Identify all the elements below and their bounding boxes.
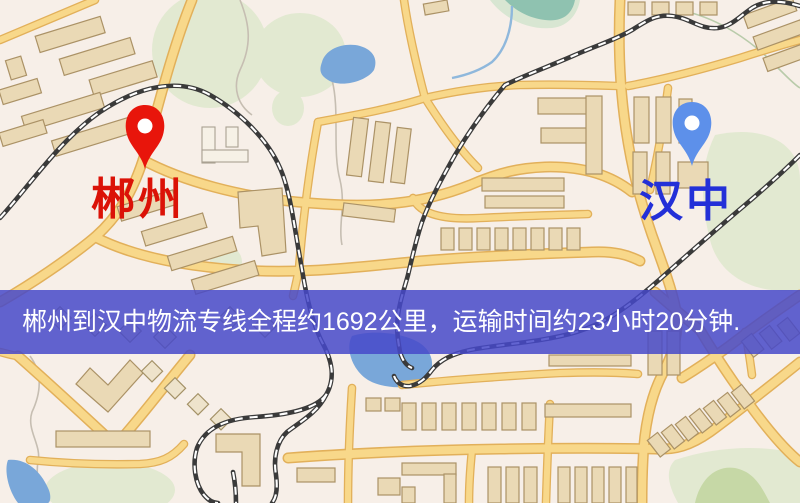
white-buildings-layer (202, 127, 248, 163)
route-info-text: 郴州到汉中物流专线全程约1692公里，运输时间约23小时20分钟. (0, 290, 800, 354)
origin-pin-icon (126, 105, 165, 169)
map-canvas: 郴州 汉中 (0, 0, 800, 503)
route-map: 郴州 汉中 郴州到汉中物流专线全程约1692公里，运输时间约23小时20分钟. (0, 0, 800, 503)
route-info-banner: 郴州到汉中物流专线全程约1692公里，运输时间约23小时20分钟. (0, 290, 800, 354)
destination-city-label: 汉中 (639, 177, 733, 226)
destination-pin-icon (673, 102, 712, 166)
origin-city-label: 郴州 (91, 175, 185, 224)
